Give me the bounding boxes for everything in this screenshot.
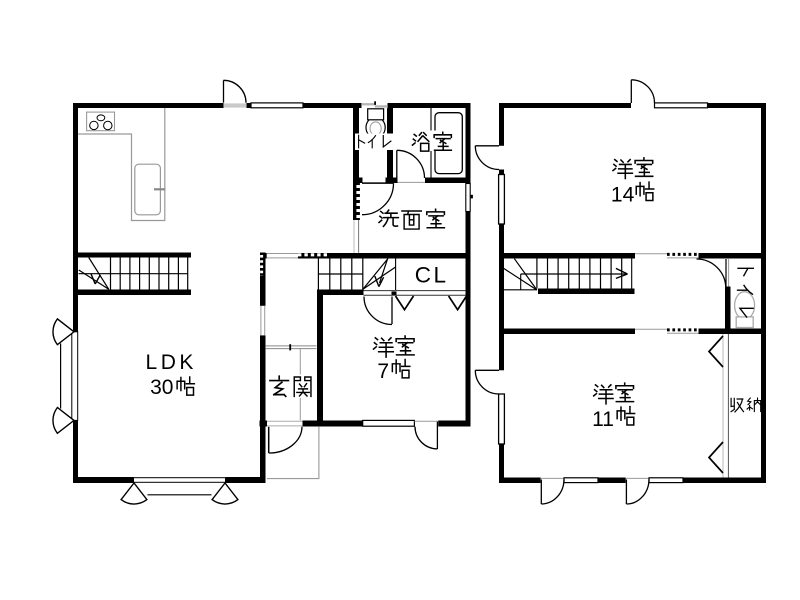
svg-text:11: 11	[592, 408, 614, 431]
svg-text:7: 7	[377, 360, 389, 383]
svg-text:14: 14	[611, 183, 635, 206]
svg-text:CL: CL	[415, 263, 449, 288]
svg-text:LDK: LDK	[146, 351, 197, 374]
svg-text:30: 30	[150, 376, 173, 399]
